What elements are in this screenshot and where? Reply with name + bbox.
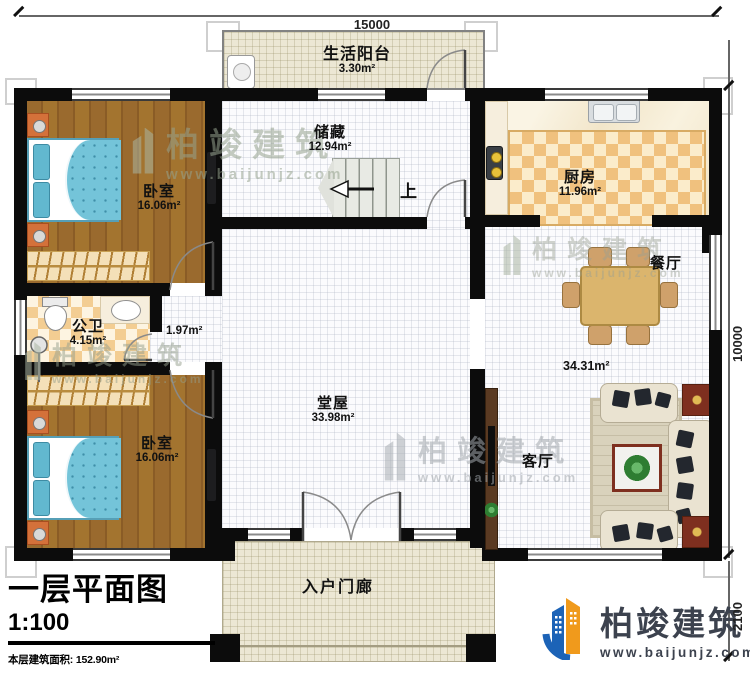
dimension-height-label: 10000	[730, 298, 745, 362]
room-label-hall: 堂屋 33.98m²	[273, 396, 393, 425]
stairs-up-label: 上	[400, 177, 417, 202]
wall	[709, 330, 722, 561]
room-label-bathroom: 公卫 4.15m²	[28, 319, 148, 348]
window	[709, 235, 722, 330]
wall	[14, 362, 170, 375]
room-label-balcony: 生活阳台 3.30m²	[287, 46, 427, 76]
nightstand	[27, 521, 49, 545]
room-label-bedroom-top: 卧室 16.06m²	[99, 184, 219, 213]
wall	[14, 548, 73, 561]
wall	[470, 369, 485, 548]
wall	[14, 283, 170, 296]
porch-column	[466, 634, 496, 662]
wardrobe	[27, 251, 150, 281]
dining-chair	[588, 247, 612, 267]
stove-icon	[486, 146, 503, 180]
wall	[222, 528, 235, 561]
dining-chair	[588, 325, 612, 345]
wall	[652, 215, 722, 227]
dimension-width-label: 15000	[340, 17, 404, 32]
room-label-kitchen: 厨房 11.96m²	[520, 170, 640, 199]
sofa	[600, 383, 678, 423]
bathroom-sink-icon	[111, 300, 141, 321]
staircase-winder	[318, 158, 334, 218]
window	[318, 88, 385, 101]
wall	[400, 528, 414, 541]
company-logo: 柏竣建筑 www.baijunjz.com	[534, 596, 750, 660]
plan-scale: 1:100	[8, 609, 69, 636]
window	[528, 548, 662, 561]
kitchen-sink-icon	[588, 99, 640, 123]
plant-icon	[485, 502, 498, 518]
living-area-label: 34.31m²	[563, 359, 610, 373]
dining-table	[580, 266, 660, 326]
stats-line-1: 本层建筑面积: 152.90m²	[8, 652, 218, 667]
window	[14, 300, 27, 355]
room-label-living: 客厅	[522, 450, 554, 471]
tv-icon	[488, 426, 495, 486]
room-label-storage: 储藏 12.94m²	[270, 125, 390, 154]
wall	[290, 528, 303, 541]
plan-title: 一层平面图	[8, 572, 168, 607]
room-label-dining: 餐厅	[650, 252, 682, 273]
staircase	[332, 158, 400, 218]
wall	[470, 101, 485, 299]
title-block: 一层平面图 1:100 本层建筑面积: 152.90m² 建筑面积: 479.9…	[8, 564, 218, 673]
porch-step-line	[240, 645, 466, 647]
wardrobe	[27, 376, 150, 406]
wall	[470, 215, 540, 227]
floor-plan: 柏竣建筑 www.baijunjz.com 柏竣建筑 www.baijunjz.…	[0, 0, 750, 673]
dining-chair	[626, 247, 650, 267]
sofa	[600, 510, 678, 552]
wall	[222, 217, 427, 229]
company-website: www.baijunjz.com	[600, 645, 750, 660]
side-table	[682, 384, 712, 416]
dining-chair	[562, 282, 580, 308]
wall	[14, 355, 27, 561]
room-label-bedroom-bottom: 卧室 16.06m²	[97, 436, 217, 465]
window	[73, 548, 170, 561]
dimension-porch-label: 2100	[730, 585, 745, 631]
hall-floor	[222, 229, 470, 528]
dining-chair	[626, 325, 650, 345]
nightstand	[27, 410, 49, 434]
wall	[14, 88, 27, 300]
company-name: 柏竣建筑	[600, 597, 750, 645]
dining-chair	[660, 282, 678, 308]
washing-machine-icon	[227, 55, 255, 89]
window	[414, 528, 456, 541]
company-logo-icon	[534, 596, 592, 660]
window	[72, 88, 170, 101]
title-underline	[8, 641, 215, 645]
wall	[662, 548, 722, 561]
room-label-porch: 入户门廊	[302, 573, 374, 597]
plant-icon	[624, 455, 650, 481]
wall	[150, 296, 162, 332]
wall	[465, 217, 472, 229]
wall	[170, 548, 222, 561]
window	[248, 528, 290, 541]
wall	[465, 88, 545, 101]
wall	[709, 88, 722, 235]
side-table	[682, 516, 712, 548]
window	[545, 88, 648, 101]
wall	[385, 88, 427, 101]
nightstand	[27, 113, 49, 137]
nightstand	[27, 223, 49, 247]
porch-floor	[222, 541, 495, 662]
wall	[170, 88, 318, 101]
hallway-area-label: 1.97m²	[166, 325, 202, 337]
